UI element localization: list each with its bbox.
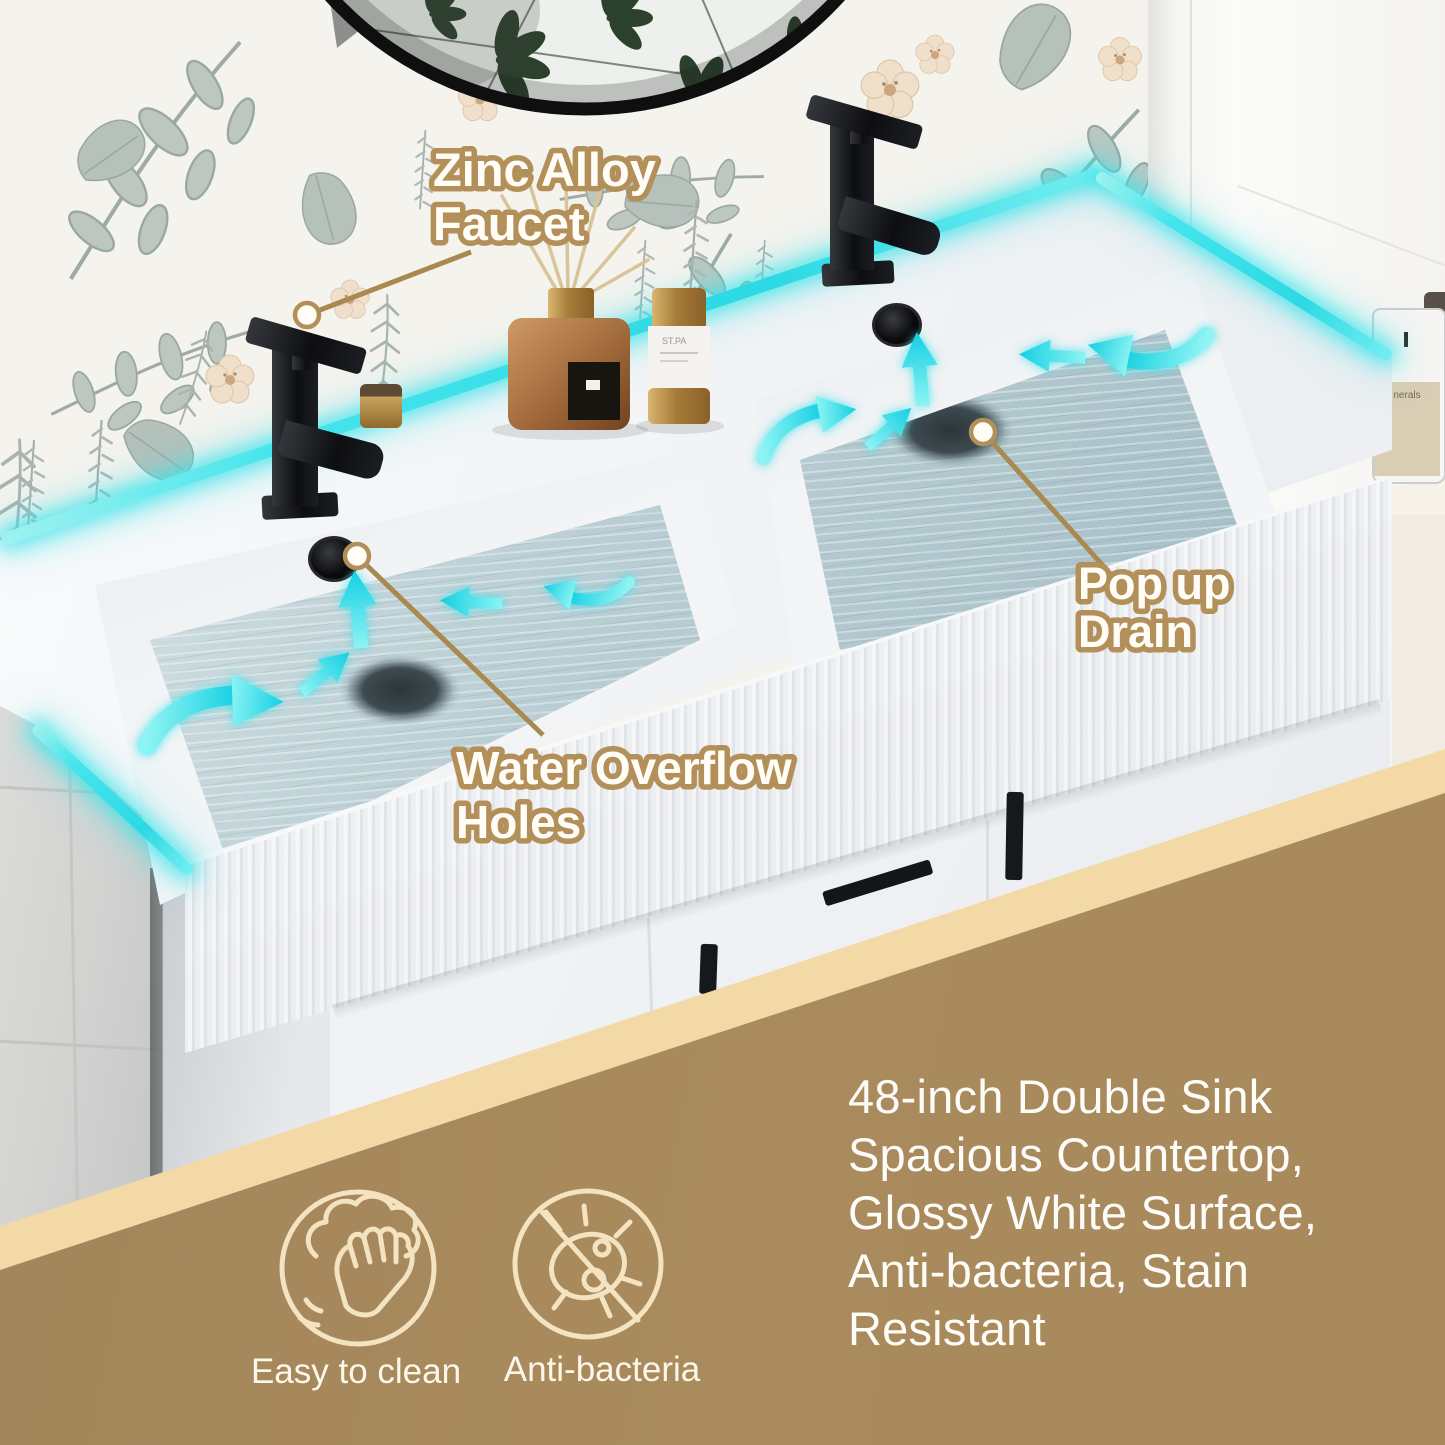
callout-drain-line2: Drain: [1078, 606, 1193, 657]
leader-lines: [307, 252, 1124, 735]
callout-overflow-line1: Water Overflow: [456, 742, 792, 794]
callout-faucet-line2: Faucet: [433, 197, 585, 250]
feature-label-easy-clean: Easy to clean: [226, 1352, 486, 1392]
description-line: Glossy White Surface,: [848, 1184, 1317, 1242]
description-line: 48-inch Double Sink: [848, 1068, 1317, 1126]
description-line: Resistant: [848, 1300, 1317, 1358]
description-line: Anti-bacteria, Stain: [848, 1242, 1317, 1300]
feature-label-anti-bacteria: Anti-bacteria: [472, 1350, 732, 1390]
callout-drain-line1: Pop up: [1078, 558, 1230, 609]
description-line: Spacious Countertop,: [848, 1126, 1317, 1184]
no-bacteria-icon: [515, 1191, 661, 1337]
product-image: nerals: [0, 0, 1445, 1445]
description-block: 48-inch Double Sink Spacious Countertop,…: [848, 1068, 1317, 1358]
callout-faucet-line1: Zinc Alloy: [433, 143, 656, 196]
hand-wipe-icon: [282, 1192, 434, 1344]
water-flow-arrows: [147, 301, 1207, 757]
leader-markers: [295, 303, 995, 568]
callout-overflow-line2: Holes: [456, 796, 581, 848]
